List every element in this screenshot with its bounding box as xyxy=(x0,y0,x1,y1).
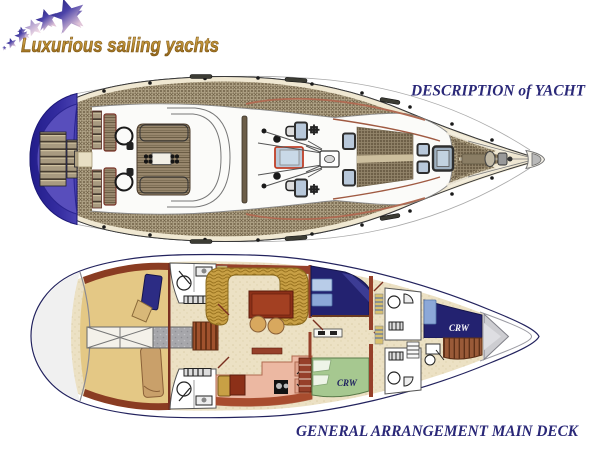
svg-text:DESCRIPTION of YACHT: DESCRIPTION of YACHT xyxy=(410,83,586,100)
svg-text:Luxurious sailing yachts: Luxurious sailing yachts xyxy=(21,35,219,57)
svg-text:CRW: CRW xyxy=(337,378,358,388)
svg-text:GENERAL ARRANGEMENT MAIN DEC: GENERAL ARRANGEMENT MAIN DECK xyxy=(296,423,580,440)
svg-text:CRW: CRW xyxy=(449,323,470,333)
